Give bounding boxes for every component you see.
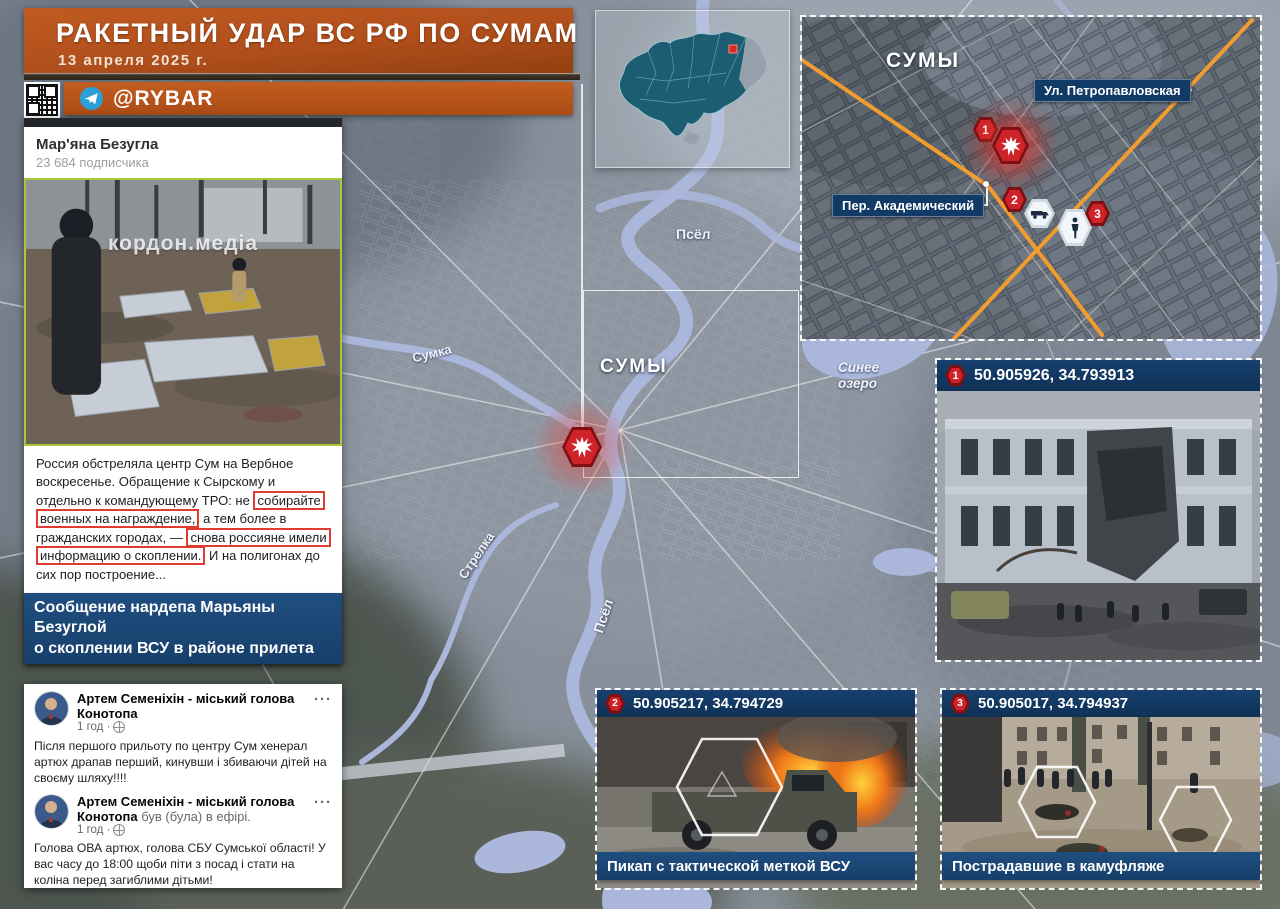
- damaged-building-photo: [937, 391, 1260, 660]
- post2b-text: Голова ОВА артюх, голова СБУ Сумської об…: [34, 840, 332, 888]
- avatar: [34, 794, 69, 829]
- post-menu-button[interactable]: ···: [314, 691, 332, 733]
- infographic-root: СУМЫ Сумка Псёл Псёл Стрелка Синее озеро…: [0, 0, 1280, 909]
- city-label-sumy: СУМЫ: [600, 356, 668, 378]
- panel3-marker: 3: [950, 694, 970, 714]
- detail-marker-3: 3: [1085, 201, 1110, 226]
- panel3-caption: Пострадавшие в камуфляже: [942, 852, 1260, 880]
- panel3-coord-bar: 3 50.905017, 34.794937: [942, 690, 1260, 717]
- leader-line-street2-v: [986, 187, 988, 206]
- panel3-coordinates: 50.905017, 34.794937: [978, 695, 1128, 712]
- post1-author[interactable]: Мар'яна Безугла: [36, 136, 330, 153]
- lake-label: Синее озеро: [838, 360, 879, 392]
- post1-caption: Сообщение нардепа Марьяны Безуглой о ско…: [24, 593, 342, 664]
- photo-panel-2: 2 50.905217, 34.794729: [595, 688, 917, 890]
- avatar: [34, 691, 69, 726]
- fb-post-a: Артем Семеніхін - міський голова Конотоп…: [24, 684, 342, 786]
- street-label-petropavlovskaya: Ул. Петропавловская: [1034, 79, 1191, 102]
- post1-text: Россия обстреляла центр Сум на Вербное в…: [24, 446, 342, 593]
- post1-photo: кордон.медіа: [24, 178, 342, 446]
- post2b-author[interactable]: Артем Семеніхін - міський голова Конотоп…: [77, 794, 306, 824]
- globe-icon: [113, 721, 125, 733]
- panel1-coordinates: 50.905926, 34.793913: [974, 367, 1134, 385]
- panel1-coord-bar: 1 50.905926, 34.793913: [937, 360, 1260, 391]
- post-time: 1 год ·: [77, 824, 110, 836]
- ukraine-inset: [595, 10, 790, 168]
- ukraine-map: [596, 11, 789, 167]
- post1-header: Мар'яна Безугла 23 684 подписчика: [24, 127, 342, 178]
- post1-photo-top-strip: [24, 118, 342, 127]
- globe-icon: [113, 824, 125, 836]
- live-suffix: був (була) в ефірі.: [138, 809, 251, 824]
- page-date: 13 апреля 2025 г.: [58, 52, 208, 69]
- post1-card: Мар'яна Безугла 23 684 подписчика: [24, 118, 342, 664]
- detail-strike-marker: [992, 127, 1029, 164]
- fb-post-b: Артем Семеніхін - міський голова Конотоп…: [24, 786, 342, 888]
- photo-watermark: кордон.медіа: [108, 232, 258, 256]
- panel1-marker: 1: [945, 365, 966, 386]
- panel2-coordinates: 50.905217, 34.794729: [633, 695, 783, 712]
- post-time: 1 год ·: [77, 721, 110, 733]
- channel-bar: @RYBAR: [64, 82, 573, 115]
- detail-truck-marker: [1024, 199, 1055, 228]
- page-title: РАКЕТНЫЙ УДАР ВС РФ ПО СУМАМ: [56, 18, 579, 49]
- post2a-text: Після першого прильоту по центру Сум хен…: [34, 738, 332, 786]
- banner-underline: [24, 73, 580, 80]
- person-icon: [1069, 217, 1081, 239]
- strike-marker-main: [562, 427, 602, 467]
- explosion-icon: [569, 434, 595, 460]
- qr-code: [24, 82, 60, 118]
- detail-map-inset: СУМЫ Ул. Петропавловская Пер. Академичес…: [800, 15, 1262, 341]
- post-menu-button[interactable]: ···: [314, 794, 332, 836]
- title-banner: РАКЕТНЫЙ УДАР ВС РФ ПО СУМАМ 13 апреля 2…: [24, 8, 573, 73]
- panel2-coord-bar: 2 50.905217, 34.794729: [597, 690, 915, 717]
- panel2-caption: Пикап с тактической меткой ВСУ: [597, 852, 915, 880]
- detail-city-label: СУМЫ: [886, 49, 960, 73]
- photo-panel-1: 1 50.905926, 34.793913: [935, 358, 1262, 662]
- post2a-author[interactable]: Артем Семеніхін - міський голова Конотоп…: [77, 691, 306, 721]
- post2-card: Артем Семеніхін - міський голова Конотоп…: [24, 684, 342, 888]
- channel-handle[interactable]: @RYBAR: [113, 87, 213, 111]
- explosion-icon: [999, 134, 1023, 158]
- photo-panel-3: 3 50.905017, 34.794937: [940, 688, 1262, 890]
- telegram-icon: [80, 87, 103, 110]
- panel2-marker: 2: [605, 694, 625, 714]
- leader-dot-street2: [983, 181, 989, 187]
- truck-icon: [1030, 207, 1050, 220]
- detail-map-background: [802, 17, 1260, 339]
- street-label-akademichesky: Пер. Академический: [832, 194, 984, 217]
- river-label-psel-top: Псёл: [676, 226, 711, 242]
- post1-followers: 23 684 подписчика: [36, 155, 330, 170]
- aftermath-photo: [26, 180, 340, 444]
